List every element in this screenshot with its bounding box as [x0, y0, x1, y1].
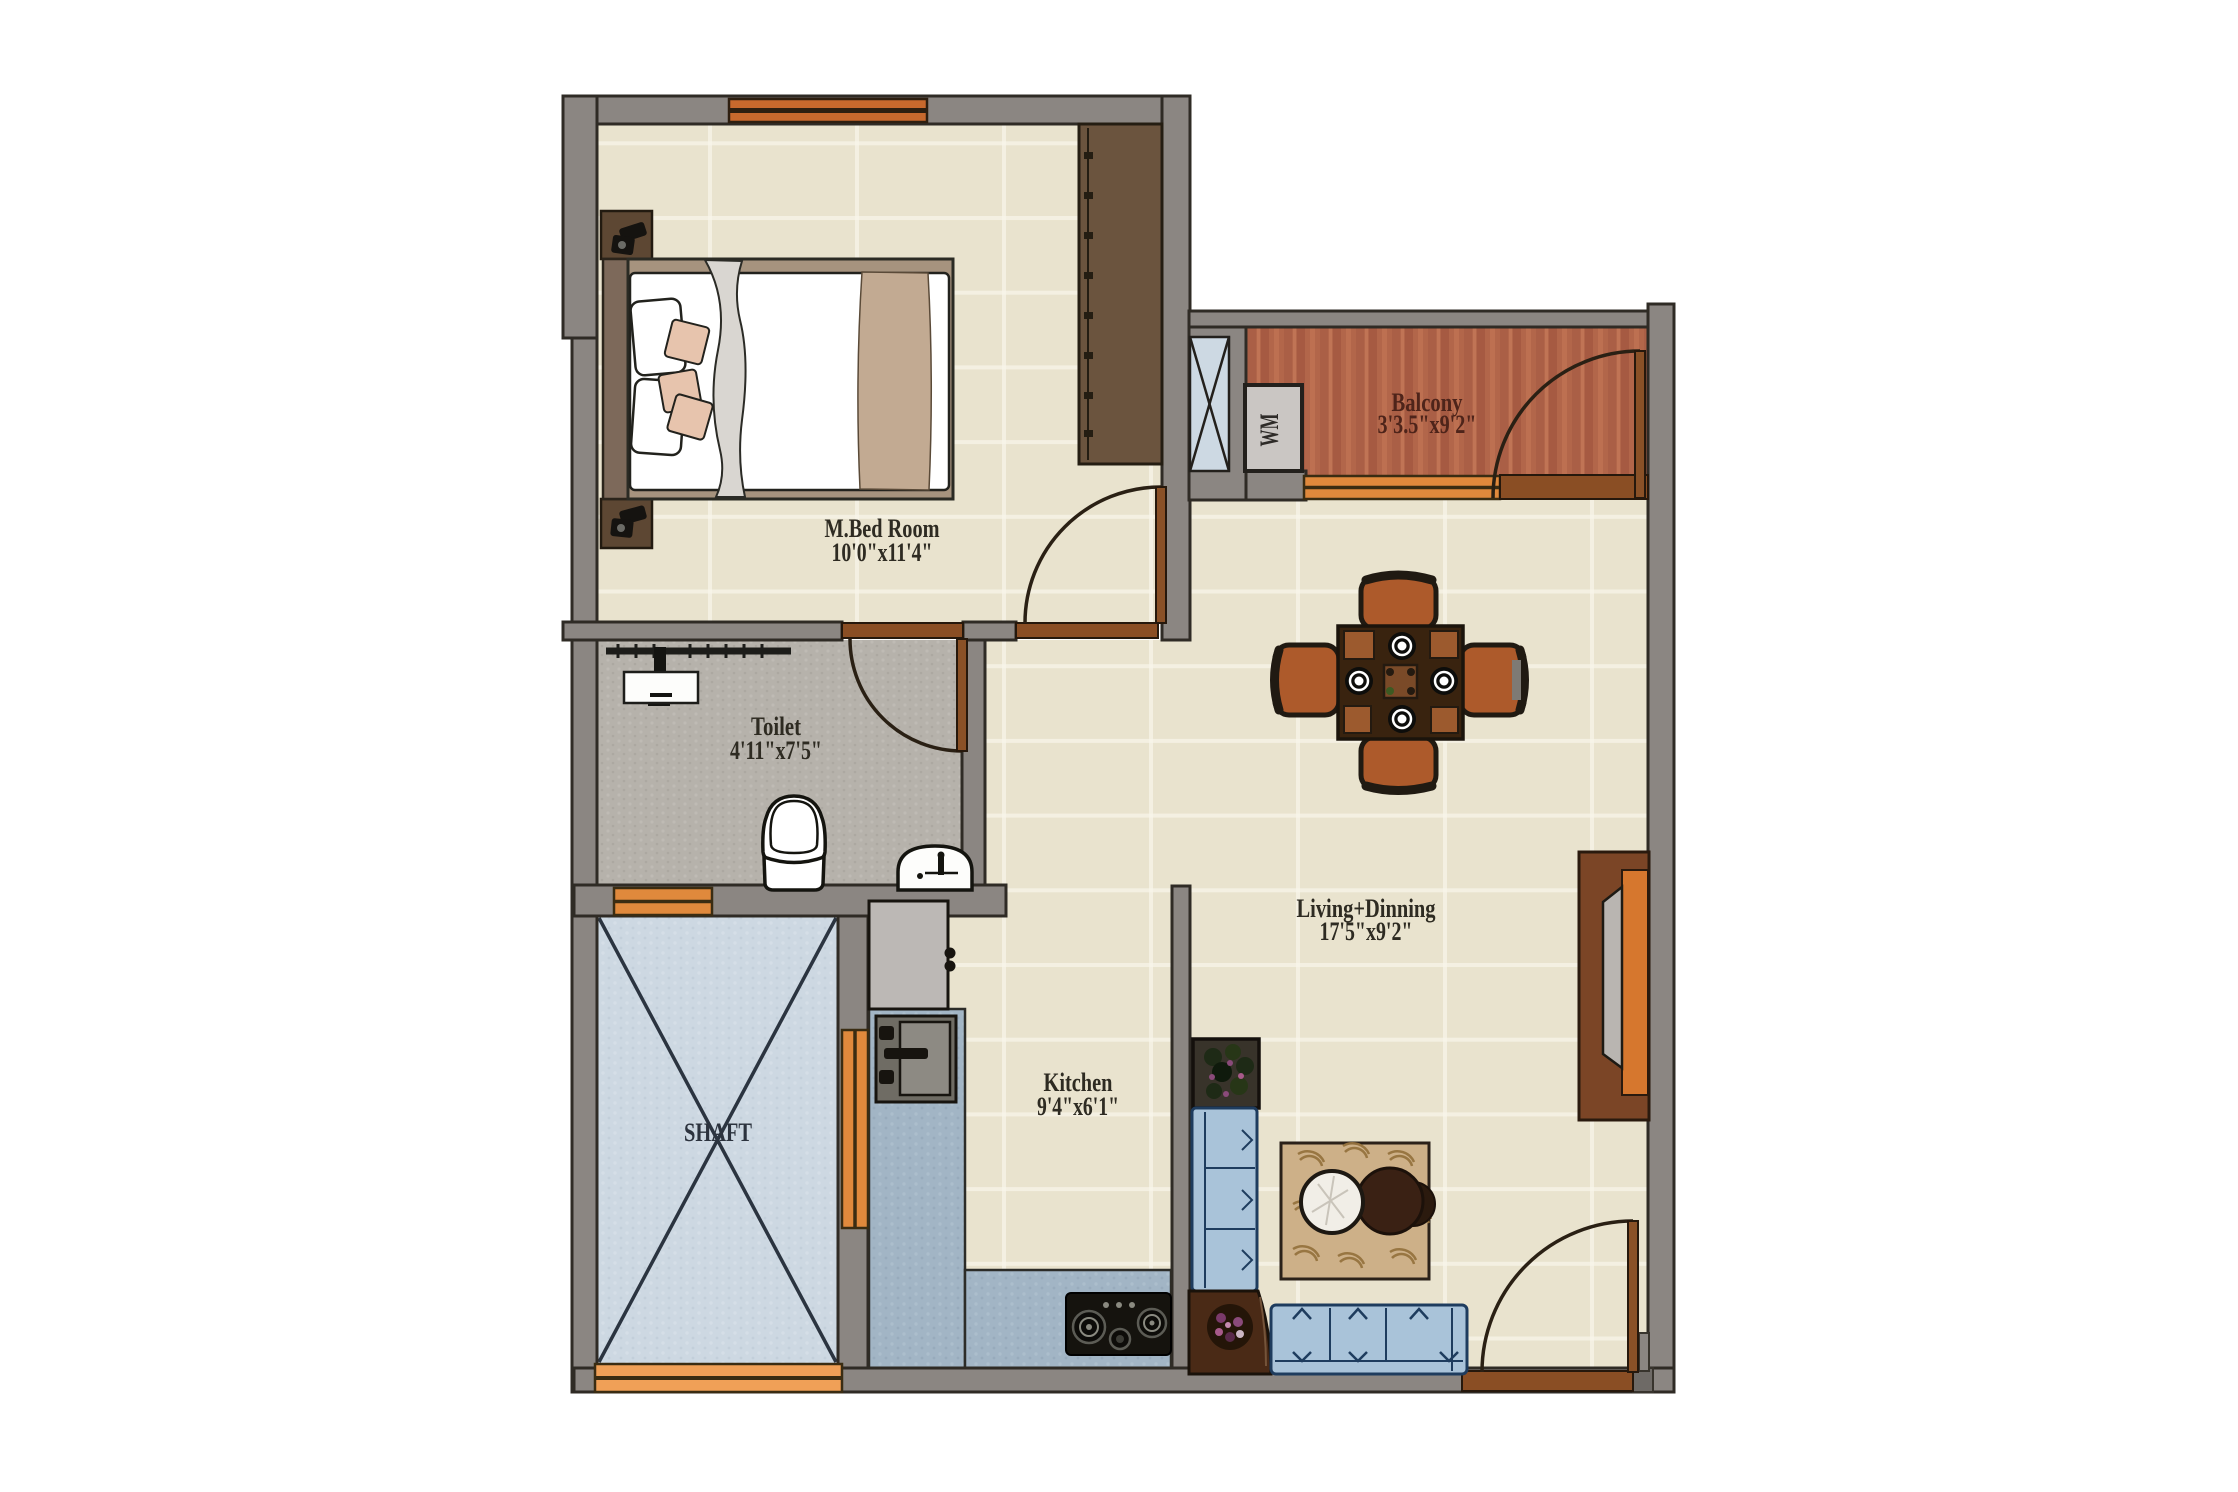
- svg-text:SHAFT: SHAFT: [684, 1118, 752, 1147]
- svg-text:17'5"x9'2": 17'5"x9'2": [1320, 917, 1413, 946]
- svg-text:3'3.5"x9'2": 3'3.5"x9'2": [1378, 410, 1477, 439]
- svg-text:4'11"x7'5": 4'11"x7'5": [730, 736, 822, 765]
- svg-text:9'4"x6'1": 9'4"x6'1": [1037, 1092, 1119, 1121]
- svg-text:10'0"x11'4": 10'0"x11'4": [832, 538, 933, 567]
- svg-text:WM: WM: [1255, 414, 1284, 447]
